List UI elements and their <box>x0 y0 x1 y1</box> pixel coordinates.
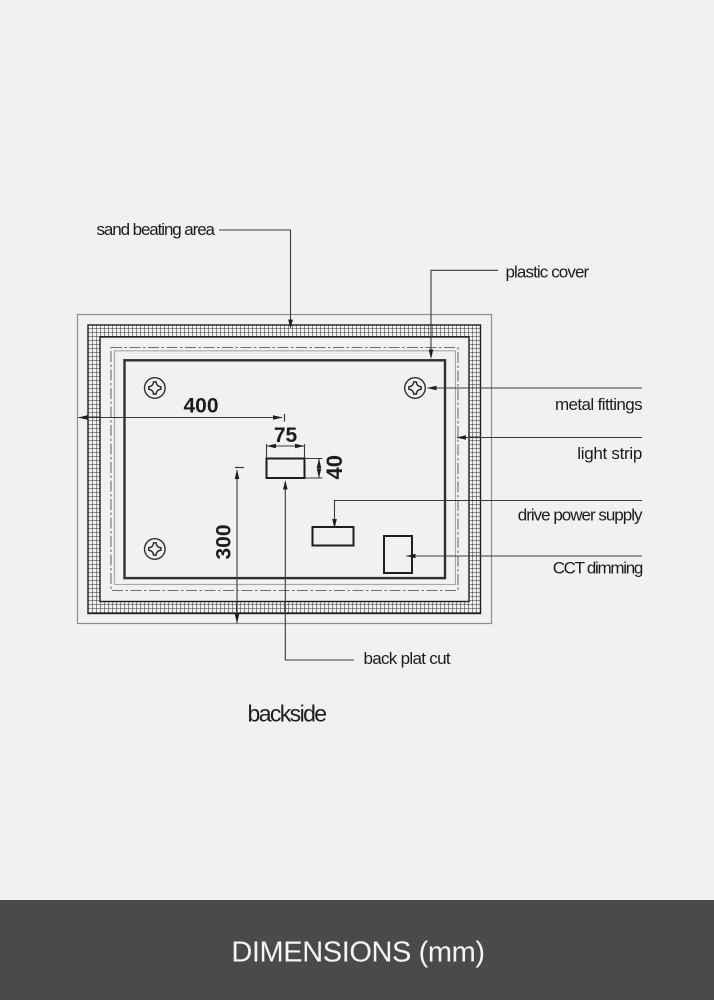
svg-text:40: 40 <box>322 455 347 479</box>
svg-text:plastic cover: plastic cover <box>506 263 590 282</box>
svg-text:backside: backside <box>248 701 327 727</box>
svg-text:DIMENSIONS (mm): DIMENSIONS (mm) <box>231 937 484 969</box>
svg-text:75: 75 <box>274 424 298 447</box>
svg-text:CCT dimming: CCT dimming <box>553 559 643 578</box>
svg-text:light strip: light strip <box>577 444 642 463</box>
svg-text:metal fittings: metal fittings <box>555 395 642 414</box>
svg-text:400: 400 <box>183 395 218 418</box>
svg-text:300: 300 <box>213 524 236 559</box>
svg-text:sand beating area: sand beating area <box>97 220 216 239</box>
svg-text:back plat cut: back plat cut <box>364 649 451 668</box>
svg-text:drive power supply: drive power supply <box>518 506 643 525</box>
